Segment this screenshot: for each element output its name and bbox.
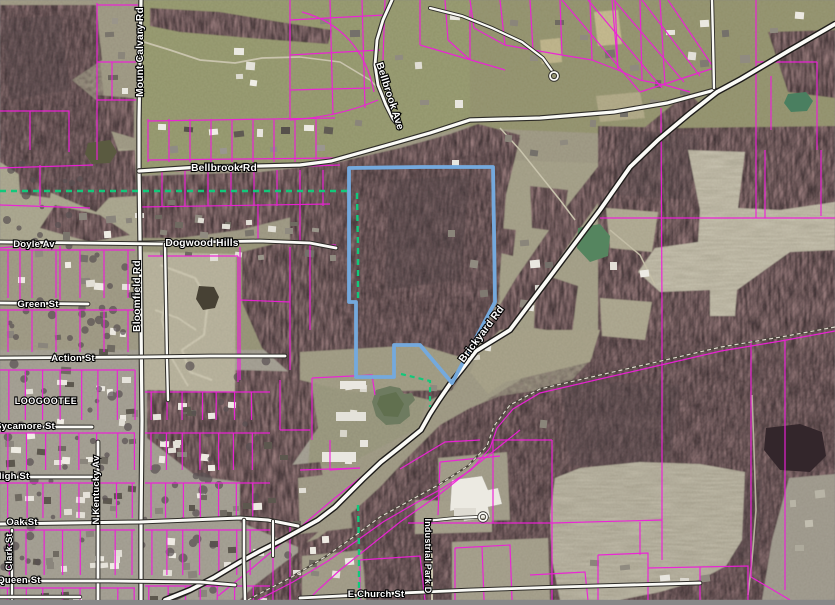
svg-text:Mount Calvary Rd: Mount Calvary Rd [135,7,146,97]
svg-text:Action St: Action St [51,353,95,364]
svg-text:Oak St: Oak St [6,517,38,528]
svg-text:Clark St: Clark St [4,533,15,571]
svg-text:LOOGOOTEE: LOOGOOTEE [15,396,78,406]
svg-text:Green St: Green St [17,299,59,310]
svg-text:N Kentucky Av: N Kentucky Av [91,455,102,524]
svg-text:Bellbrook Rd: Bellbrook Rd [191,163,257,174]
svg-text:Bloomfield Rd: Bloomfield Rd [132,260,143,332]
svg-text:Sycamore St: Sycamore St [0,421,56,432]
svg-text:E Church St: E Church St [348,589,405,600]
svg-text:Dogwood Hills: Dogwood Hills [165,238,238,249]
svg-text:High St: High St [0,471,30,482]
svg-text:Industrial Park D: Industrial Park D [423,519,433,594]
svg-text:Doyle Av: Doyle Av [13,239,55,250]
svg-text:Queen St: Queen St [0,575,41,586]
